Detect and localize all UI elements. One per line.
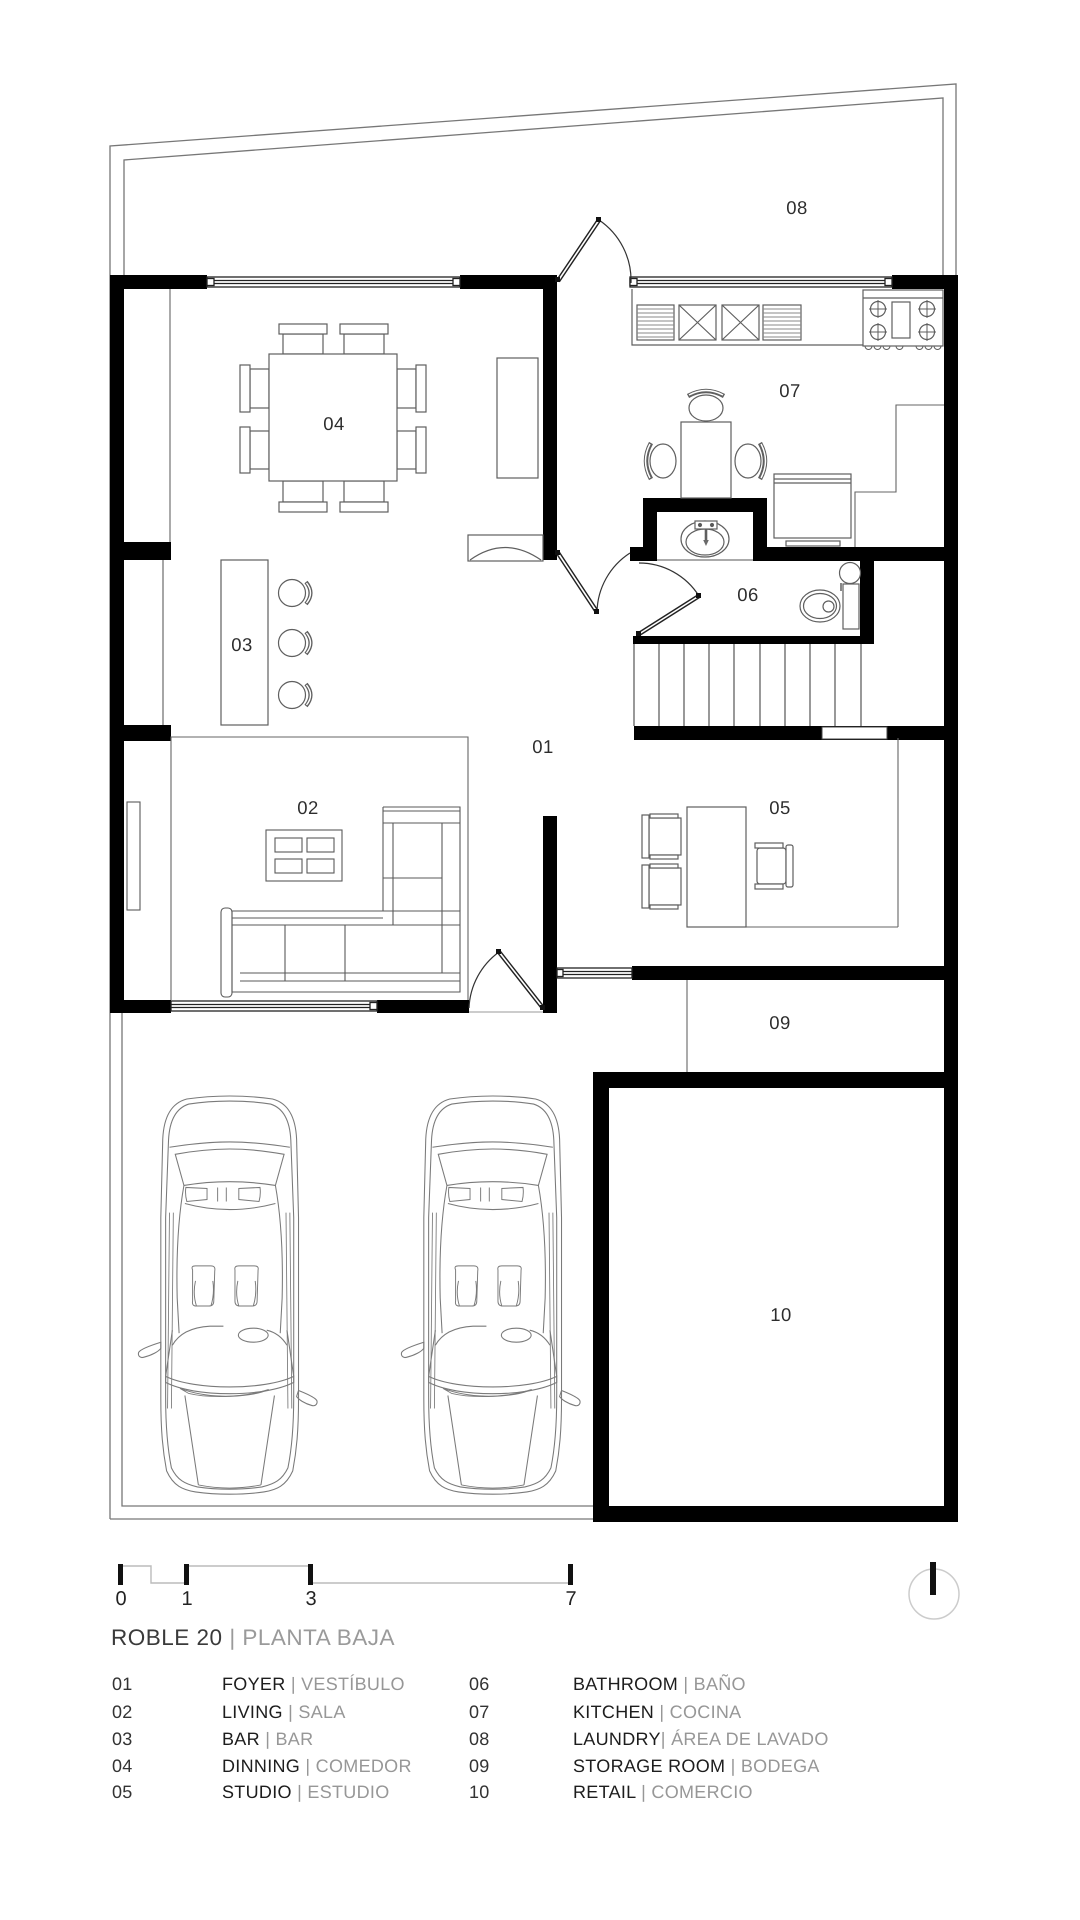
svg-text:RETAIL | COMERCIO: RETAIL | COMERCIO: [573, 1782, 753, 1802]
svg-text:07: 07: [779, 380, 801, 401]
svg-text:06: 06: [737, 584, 759, 605]
svg-text:04: 04: [323, 413, 345, 434]
svg-text:STUDIO | ESTUDIO: STUDIO | ESTUDIO: [222, 1782, 390, 1802]
svg-text:ROBLE 20 | PLANTA BAJA: ROBLE 20 | PLANTA BAJA: [111, 1625, 395, 1650]
svg-text:KITCHEN | COCINA: KITCHEN | COCINA: [573, 1702, 742, 1722]
svg-text:09: 09: [469, 1756, 490, 1776]
svg-text:08: 08: [786, 197, 808, 218]
svg-text:BATHROOM | BAÑO: BATHROOM | BAÑO: [573, 1674, 746, 1694]
svg-text:LAUNDRY| ÁREA DE LAVADO: LAUNDRY| ÁREA DE LAVADO: [573, 1729, 829, 1749]
svg-text:04: 04: [112, 1756, 133, 1776]
svg-text:LIVING | SALA: LIVING | SALA: [222, 1702, 346, 1722]
svg-text:02: 02: [112, 1702, 133, 1722]
svg-text:05: 05: [112, 1782, 133, 1802]
svg-text:05: 05: [769, 797, 791, 818]
svg-text:10: 10: [469, 1782, 490, 1802]
svg-text:02: 02: [297, 797, 319, 818]
svg-text:01: 01: [112, 1674, 133, 1694]
svg-text:0: 0: [115, 1588, 126, 1610]
svg-text:03: 03: [112, 1729, 133, 1749]
svg-text:STORAGE ROOM | BODEGA: STORAGE ROOM | BODEGA: [573, 1756, 820, 1776]
svg-text:08: 08: [469, 1729, 490, 1749]
svg-text:DINNING | COMEDOR: DINNING | COMEDOR: [222, 1756, 412, 1776]
svg-text:1: 1: [181, 1588, 192, 1610]
svg-text:7: 7: [565, 1588, 576, 1610]
svg-text:FOYER | VESTÍBULO: FOYER | VESTÍBULO: [222, 1674, 405, 1694]
svg-text:06: 06: [469, 1674, 490, 1694]
svg-text:07: 07: [469, 1702, 490, 1722]
svg-text:01: 01: [532, 736, 554, 757]
svg-text:03: 03: [231, 634, 253, 655]
svg-text:BAR | BAR: BAR | BAR: [222, 1729, 313, 1749]
svg-text:09: 09: [769, 1012, 791, 1033]
svg-text:3: 3: [305, 1588, 316, 1610]
svg-text:10: 10: [770, 1304, 792, 1325]
